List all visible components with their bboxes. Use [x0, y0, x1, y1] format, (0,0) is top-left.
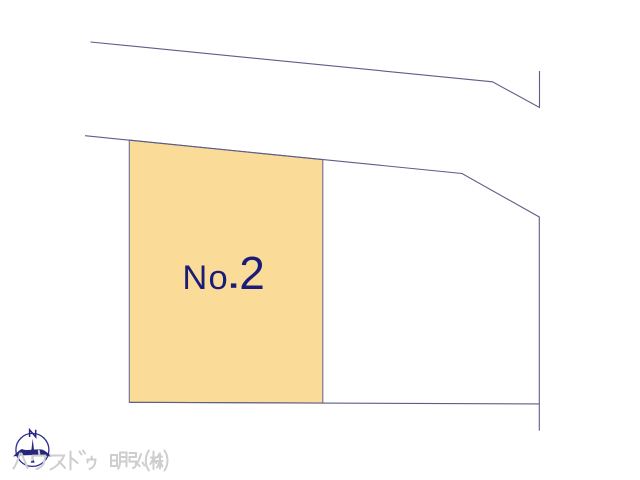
- svg-text:No: No: [182, 259, 229, 297]
- svg-text:2: 2: [239, 247, 265, 299]
